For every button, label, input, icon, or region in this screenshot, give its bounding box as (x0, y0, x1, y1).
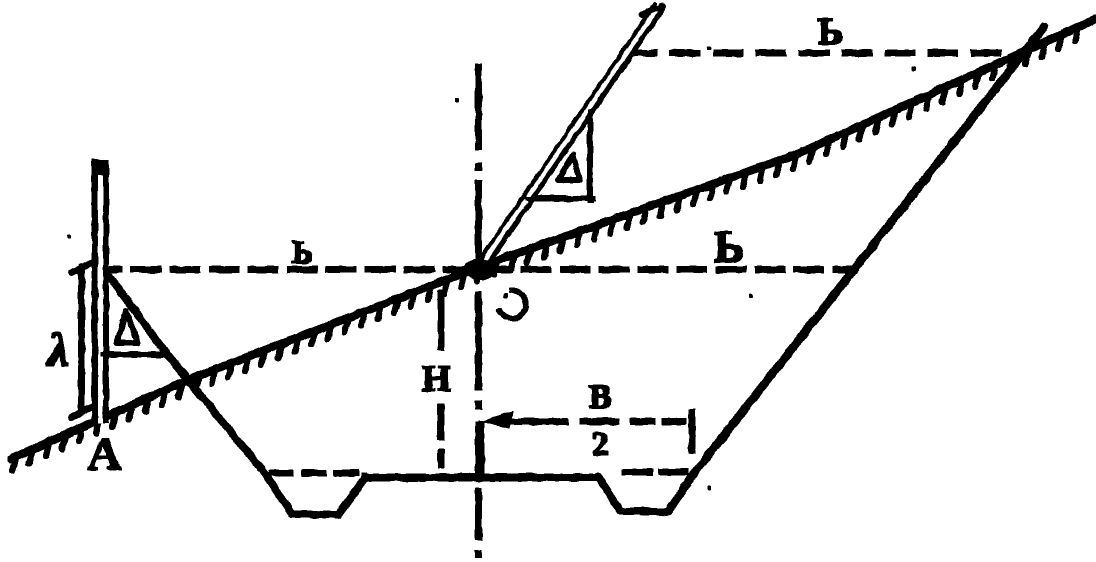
svg-text:A: A (88, 428, 121, 479)
svg-text:H: H (422, 359, 451, 400)
svg-text:B: B (589, 379, 612, 416)
svg-text:λ: λ (46, 324, 69, 376)
svg-text:Ь: Ь (714, 221, 744, 272)
svg-text:2: 2 (592, 426, 609, 463)
svg-text:Ь: Ь (818, 11, 843, 53)
svg-text:Ь: Ь (292, 234, 313, 270)
